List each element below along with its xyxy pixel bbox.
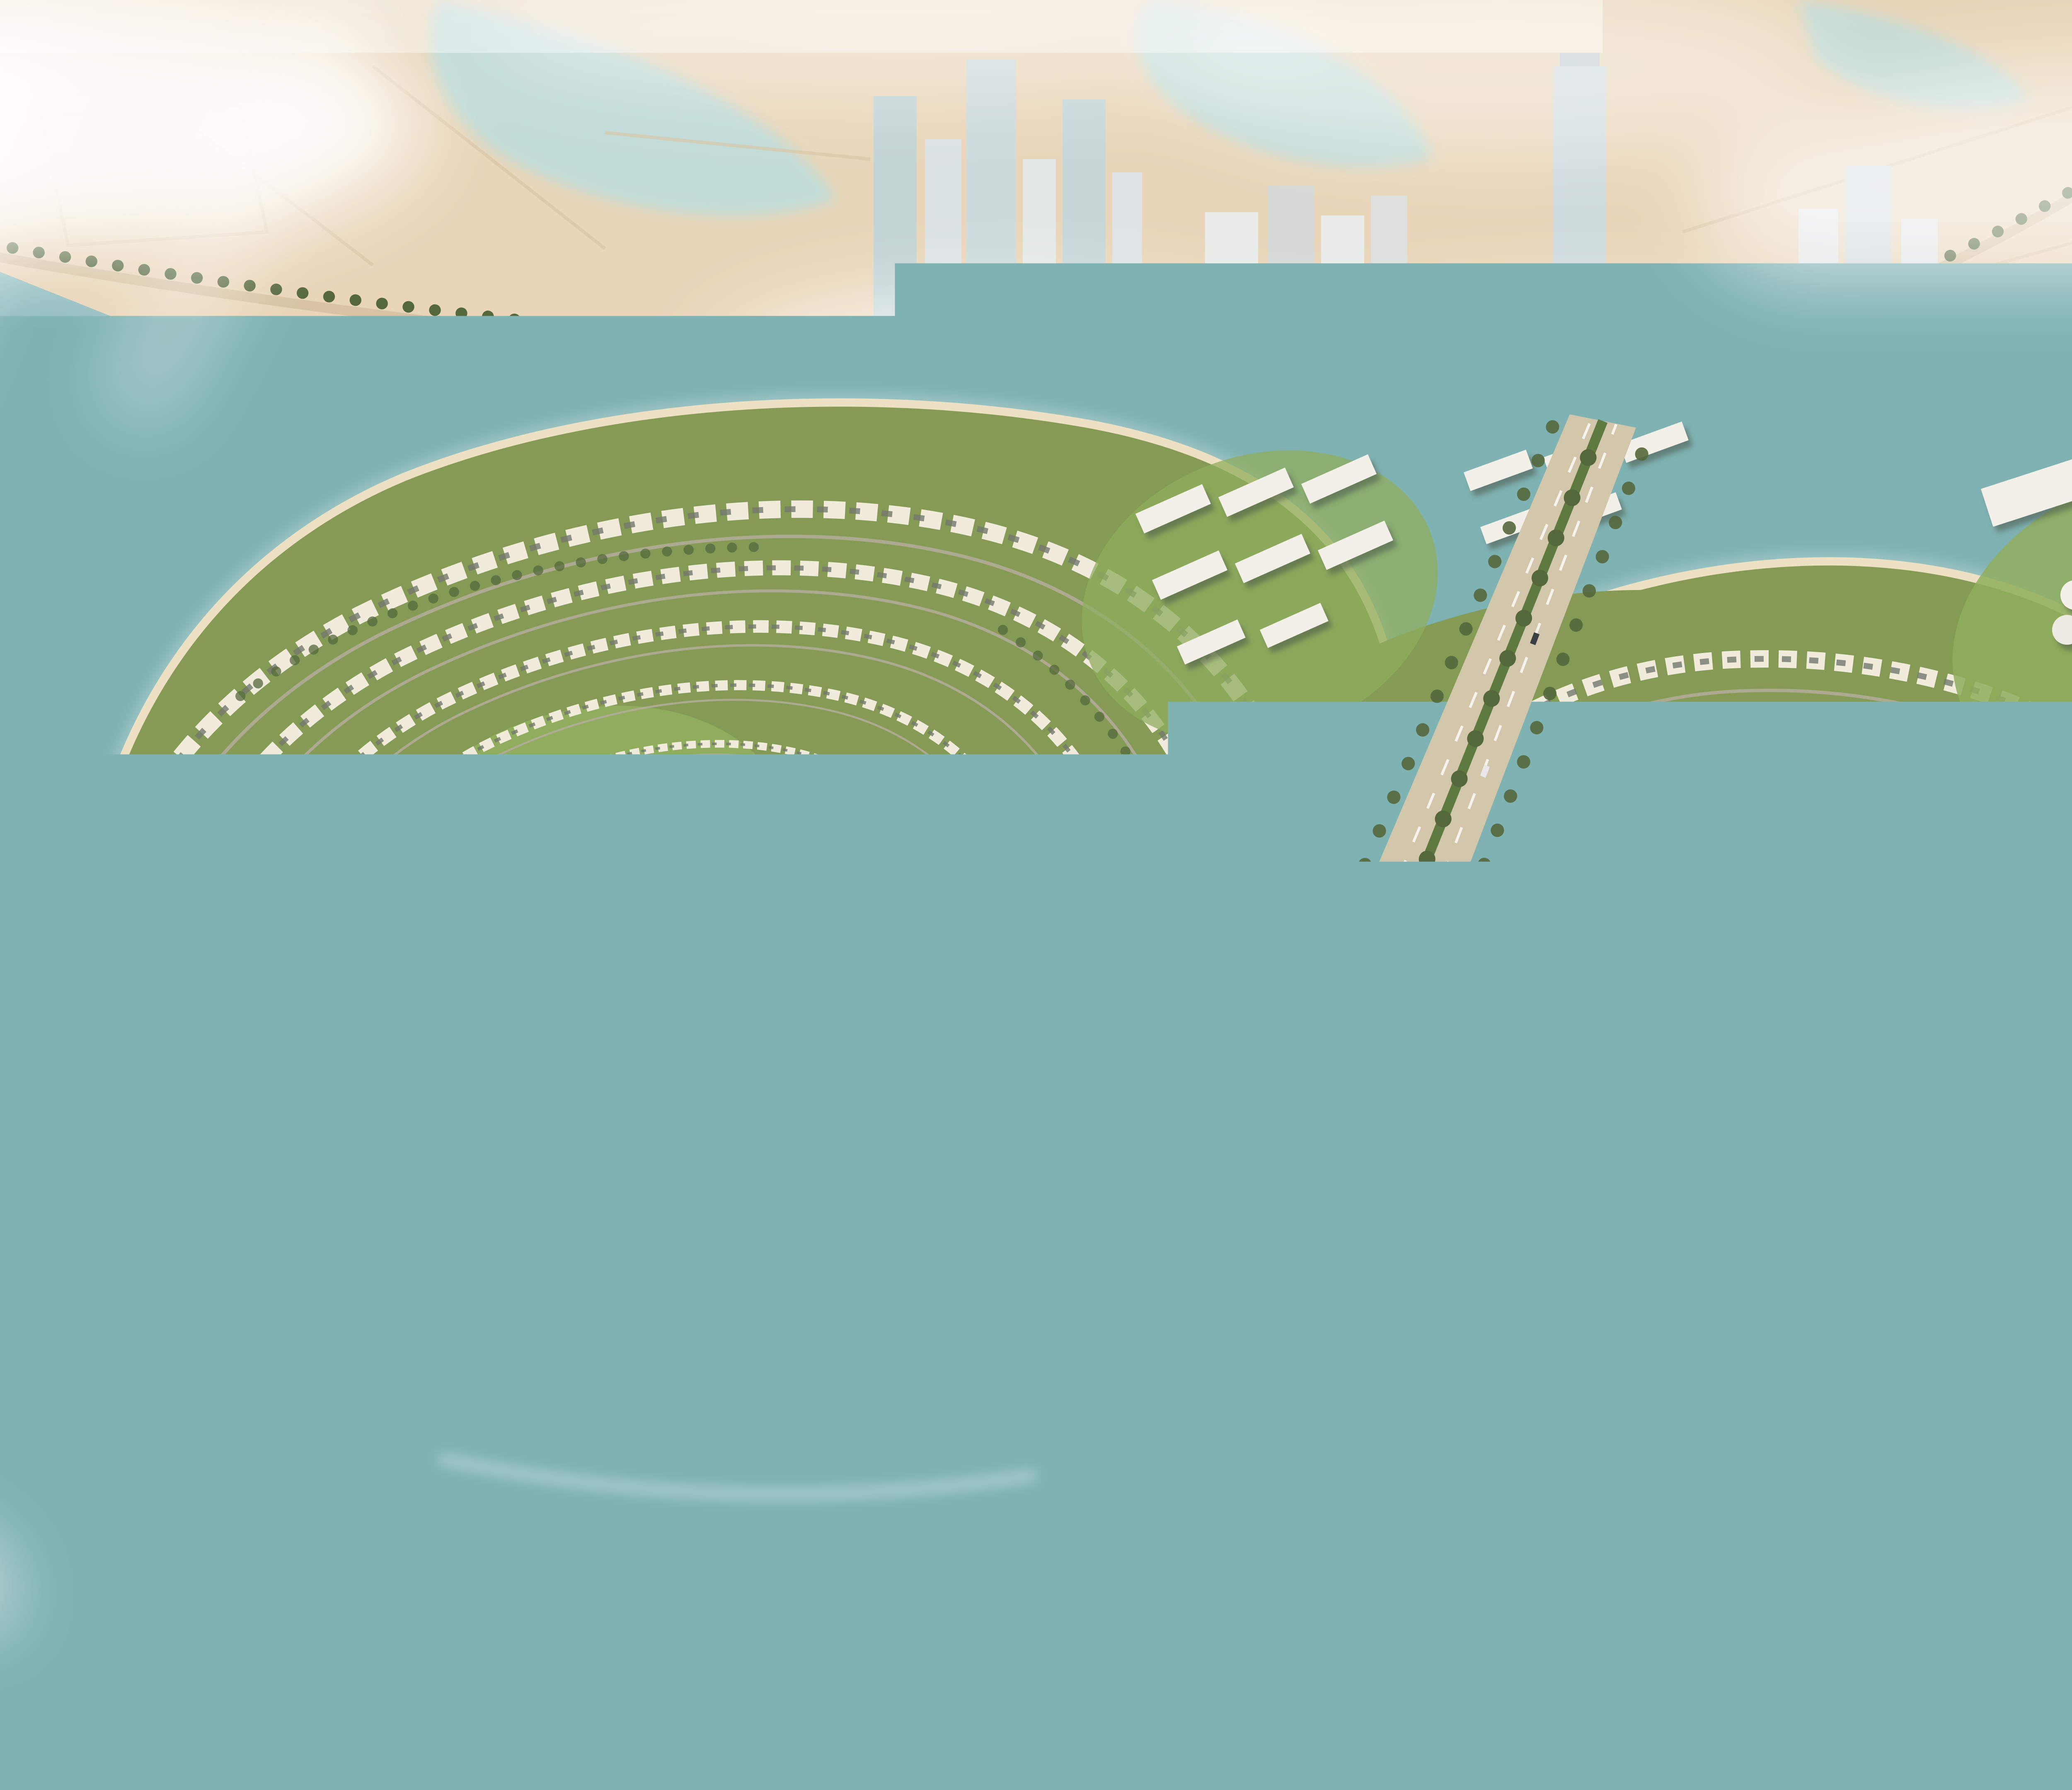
cloud	[0, 1459, 25, 1790]
apartment-slab	[1480, 506, 1546, 544]
right-district-beach	[1227, 566, 2072, 1532]
mainland-sand	[0, 0, 2072, 1160]
bridge-revetments	[1102, 1296, 1314, 1429]
left-district-land	[83, 406, 1399, 1405]
roadside-trees	[1016, 418, 1649, 1790]
left-villa-district	[24, 437, 1375, 1507]
inlet	[430, 0, 837, 216]
right-villa-district	[1213, 552, 2072, 1652]
median-trees	[1076, 421, 1603, 1790]
wing	[2060, 580, 2072, 610]
tower-cap	[1560, 53, 1600, 66]
aerial-render-canvas	[0, 0, 2072, 1790]
skyline-haze	[721, 282, 2072, 481]
crescent-sand	[0, 754, 128, 1008]
cultural-building	[2052, 545, 2072, 645]
car	[1480, 765, 1490, 778]
slab	[2011, 674, 2072, 819]
left-district-beach	[83, 406, 1399, 1405]
tower	[1205, 212, 1258, 365]
wing	[2070, 550, 2072, 640]
bridge-edges	[1031, 1235, 1318, 1790]
right-district-land	[1227, 566, 2072, 1532]
bottom-beach	[340, 1720, 738, 1790]
striped-slab-building	[2011, 674, 2072, 819]
ring-roads	[65, 469, 1328, 1470]
apartment-slab	[1301, 454, 1377, 503]
ring-roads	[1261, 593, 2072, 1604]
cloud	[1566, 1367, 2072, 1790]
skyline	[721, 20, 2072, 481]
central-park	[1648, 890, 1966, 1149]
crescent-sand	[0, 991, 746, 1372]
glare-streak	[0, 0, 83, 597]
sea-deep-overlay	[1185, 1260, 2072, 1790]
upper-road-trees	[1600, 129, 2072, 383]
car	[1530, 632, 1539, 645]
apartment-slab	[1318, 520, 1393, 570]
cloud	[472, 0, 1334, 103]
mainland-desert	[0, 0, 2072, 1160]
tower	[1112, 172, 1142, 371]
mangrove-strip	[0, 1726, 141, 1790]
central-plaza	[1748, 975, 1882, 1081]
tower	[925, 139, 961, 371]
mangrove-islands	[0, 0, 738, 1790]
apartment-slab	[1135, 484, 1211, 533]
cloud	[1169, 0, 1832, 149]
sphere-pavilion	[2052, 615, 2072, 645]
south-condo-row	[1235, 1309, 2072, 1524]
apartment-slab	[1260, 603, 1329, 648]
left-district-foam	[83, 406, 1399, 1405]
campus-boxes	[1981, 423, 2072, 585]
villa-rings	[1213, 552, 2072, 1652]
surf-foam	[0, 776, 1036, 1494]
villa-rings	[24, 437, 1375, 1507]
rock-revetment	[1210, 1346, 1765, 1566]
crescent-roof-row	[8, 991, 741, 1361]
apartment-slab	[1556, 492, 1622, 531]
campus-box	[1981, 456, 2072, 527]
skyline-cluster-east	[1798, 166, 1938, 358]
crescent-island-south	[0, 991, 746, 1372]
car	[1424, 921, 1433, 934]
apartment-slab	[1619, 421, 1689, 463]
car	[1169, 1544, 1178, 1557]
bridge-shadow	[966, 1077, 1243, 1790]
tower	[966, 60, 1016, 371]
median-strip	[1076, 421, 1603, 1790]
central-park	[351, 664, 826, 1060]
cloud	[0, 0, 423, 249]
top-haze	[0, 0, 2072, 431]
apartment-slab	[1177, 619, 1246, 665]
skyline-cluster-white	[1205, 186, 1407, 365]
apartment-slab	[1152, 550, 1227, 600]
apartment-clusters	[1040, 402, 1689, 791]
inlet	[1135, 0, 1434, 167]
car	[1331, 1146, 1341, 1159]
district-connector	[1260, 590, 1649, 928]
wind-streaks	[0, 862, 75, 1541]
shore-villa-rows	[472, 1301, 2072, 1566]
tower	[1845, 166, 1891, 358]
tower	[1268, 186, 1314, 365]
secondary-roads	[1205, 423, 2072, 1326]
shore-road-trees	[0, 234, 1591, 383]
tower	[1901, 219, 1938, 358]
cars	[1169, 632, 1539, 1557]
cloud	[0, 1624, 588, 1790]
sun-glare	[0, 0, 381, 597]
apartment-slab	[1543, 435, 1612, 476]
skyline-lone-tower	[1553, 53, 1606, 373]
tower	[1023, 159, 1056, 371]
field-plots	[41, 66, 2072, 315]
tower	[874, 96, 917, 371]
south-condo-roofs	[1235, 1301, 2072, 1515]
skyline-cluster-center	[874, 60, 1142, 371]
clouds	[0, 0, 2072, 1790]
car	[1371, 1047, 1380, 1059]
crescent-green	[5, 996, 743, 1371]
crescent-villa-row	[0, 762, 123, 1008]
roof-rings	[1213, 552, 2072, 1652]
apartment-slab	[1235, 534, 1310, 583]
slab-stripes	[2016, 695, 2072, 808]
lane-markings	[1056, 419, 1616, 1790]
park-lake	[463, 802, 615, 905]
apartment-slabs	[1135, 421, 1689, 665]
sea	[0, 0, 2072, 1790]
upper-road	[1591, 141, 2072, 394]
spine-boulevard	[966, 414, 1649, 1790]
crescent-villa-row	[8, 1001, 741, 1371]
car	[1271, 1295, 1281, 1308]
campus-lawn	[1910, 414, 2072, 846]
crescent-islands	[0, 754, 1036, 1494]
right-district-foam	[1227, 566, 2072, 1532]
park-trees	[240, 547, 1202, 1226]
glare-streak	[99, 0, 381, 431]
institutional-campus	[1910, 414, 2072, 1077]
interchange-ramp	[1636, 428, 1964, 564]
roof-rings	[24, 437, 1375, 1507]
tower	[1063, 99, 1106, 371]
tower	[1371, 196, 1407, 365]
tower	[1798, 209, 1838, 358]
apartment-slab	[1464, 450, 1533, 491]
crescent-green	[0, 759, 124, 1006]
lagoon	[75, 994, 700, 1379]
south-beach-villas	[472, 1369, 1102, 1419]
tower	[1553, 66, 1606, 373]
desert-road	[2031, 99, 2072, 398]
apartment-slab	[1218, 467, 1294, 517]
crescent-island-north	[0, 754, 128, 1008]
shore-boulevard	[0, 99, 2072, 1160]
park-trees	[1517, 737, 2064, 1360]
interchange-loop	[1616, 423, 1736, 594]
west-coastal-road	[1205, 920, 1401, 1326]
car	[1212, 1434, 1221, 1447]
sea-base	[0, 0, 2072, 1790]
development-island	[24, 406, 2072, 1652]
inlet	[1798, 0, 2031, 110]
pink-sand-tint	[1997, 562, 2072, 1160]
cluster-base	[1040, 402, 1479, 791]
spine-road	[1031, 414, 1636, 1790]
shore-road	[0, 245, 1591, 394]
tower	[1321, 215, 1364, 365]
cloud	[1699, 66, 2072, 331]
coastal-inlets	[430, 0, 2031, 216]
crescent-roof-row	[0, 754, 123, 999]
rock-revetment	[506, 1439, 887, 1480]
